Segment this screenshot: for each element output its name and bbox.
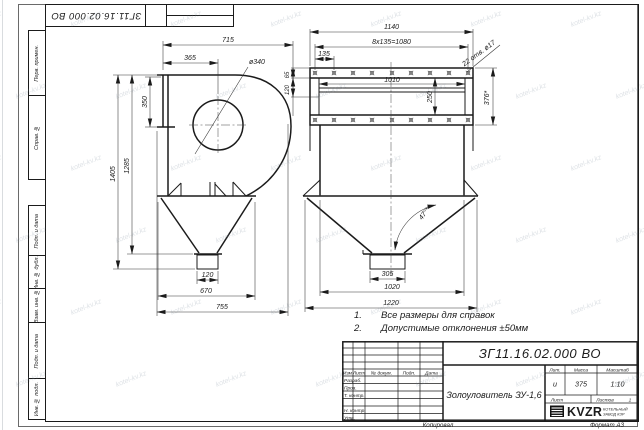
note-number: 1. [350,309,381,322]
sidebar-cell-podp-data-1: Подп. и дата [28,205,46,257]
dim-left-1285: 1285 [124,158,131,174]
dim-right-1220: 1220 [383,300,399,307]
notes: 1. Все размеры для справок 2. Допустимые… [350,309,528,335]
dim-right-angle: 47°* [417,206,432,222]
sheet-label: Лист [550,397,563,403]
mass-label: Масса [574,367,589,373]
kvzr-logo: KVZR КОТЕЛЬНЫЙ ЗАВОД КЗР [550,405,628,419]
col-izm: Изм [343,370,353,376]
dim-left-1405: 1405 [110,166,117,182]
kvzr-logo-text: KVZR [567,405,602,419]
row-t-kontr: Т. контр. [344,393,365,399]
lit-value: и [553,380,557,389]
sidebar-label: Перв. примен. [34,45,40,82]
sidebar-label: Инв. № дубл. [34,256,40,290]
sidebar-label: Подп. и дата [34,334,40,368]
kvzr-logo-sub2: ЗАВОД КЗР [603,412,625,417]
dim-right-135: 135 [318,51,330,58]
mass-value: 375 [575,380,588,389]
dim-left-120: 120 [202,272,214,279]
row-prov: Пров. [344,385,357,391]
dim-right-65: 65 [285,71,291,78]
lit-label: Лит. [548,367,560,373]
dim-left-670: 670 [200,288,212,295]
row-n-kontr: Н. контр. [344,408,366,414]
sheets-label: Листов [595,397,614,403]
dim-left-350: 350 [142,96,149,108]
note-1: 1. Все размеры для справок [350,309,528,322]
product-name: Золоуловитель ЗУ-1,6 [446,390,541,400]
dim-left-dia340: ø340 [249,59,265,66]
col-podp: Подп. [403,370,416,376]
title-block: Изм Лист № докум. Подп. Дата Разраб. Про… [342,341,638,421]
left-view: 715 365 ø340 350 1405 1285 120 670 755 [110,37,293,316]
dim-right-250: 250 [427,91,434,104]
dim-right-120: 120 [285,84,291,95]
dim-right-305: 305 [382,271,394,278]
footer-copied: Копировал [408,422,468,429]
dim-right-376: 376* [484,91,491,106]
dim-left-715: 715 [222,37,234,44]
scan-edge [2,0,3,430]
note-number: 2. [350,322,381,335]
row-razrab: Разраб. [344,378,361,384]
sidebar-cell-sprav-no: Справ. № [28,95,46,180]
drawing-sheet: { "watermark": {"text": "kotel-kv.kz"}, … [0,0,644,430]
sidebar-label: Взам. инв. № [34,289,40,323]
dim-right-1020: 1020 [384,284,400,291]
sidebar-cell-inv-podl: Инв. № подл. [28,378,46,420]
designation-text: ЗГ11.16.02.000 ВО [479,346,601,361]
dim-right-1010: 1010 [384,77,400,84]
footer-format: Формат А3 [578,422,636,429]
sidebar-cell-vzam-inv: Взам. инв. № [28,288,46,324]
dim-left-365: 365 [184,55,196,62]
sidebar-label: Подп. и дата [34,214,40,248]
col-list: Лист [352,370,365,376]
dim-right-pitch: 8x135=1080 [372,39,411,46]
sidebar-cell-perv-primen: Перв. примен. [28,30,46,97]
note-text: Допустимые отклонения ±50мм [381,322,528,335]
row-utv: Утв. [344,415,355,421]
note-2: 2. Допустимые отклонения ±50мм [350,322,528,335]
dim-left-755: 755 [216,304,228,311]
note-text: Все размеры для справок [381,309,495,322]
col-data: Дата [424,370,438,376]
dim-right-1140: 1140 [384,24,399,31]
sidebar-label: Справ. № [34,125,40,150]
sidebar-cell-podp-data-2: Подп. и дата [28,322,46,380]
sidebar-cell-inv-dubl: Инв. № дубл. [28,255,46,290]
scale-value: 1:10 [611,380,625,389]
right-view: 1140 8x135=1080 135 1010 250 65 120 22 о… [285,24,500,312]
scale-label: Масштаб [606,367,629,373]
holes-note: 22 отв. ø17 [460,39,497,69]
sheets-value: 1 [629,397,632,403]
col-dokum: № докум. [371,370,392,376]
sidebar-label: Инв. № подл. [34,382,40,416]
